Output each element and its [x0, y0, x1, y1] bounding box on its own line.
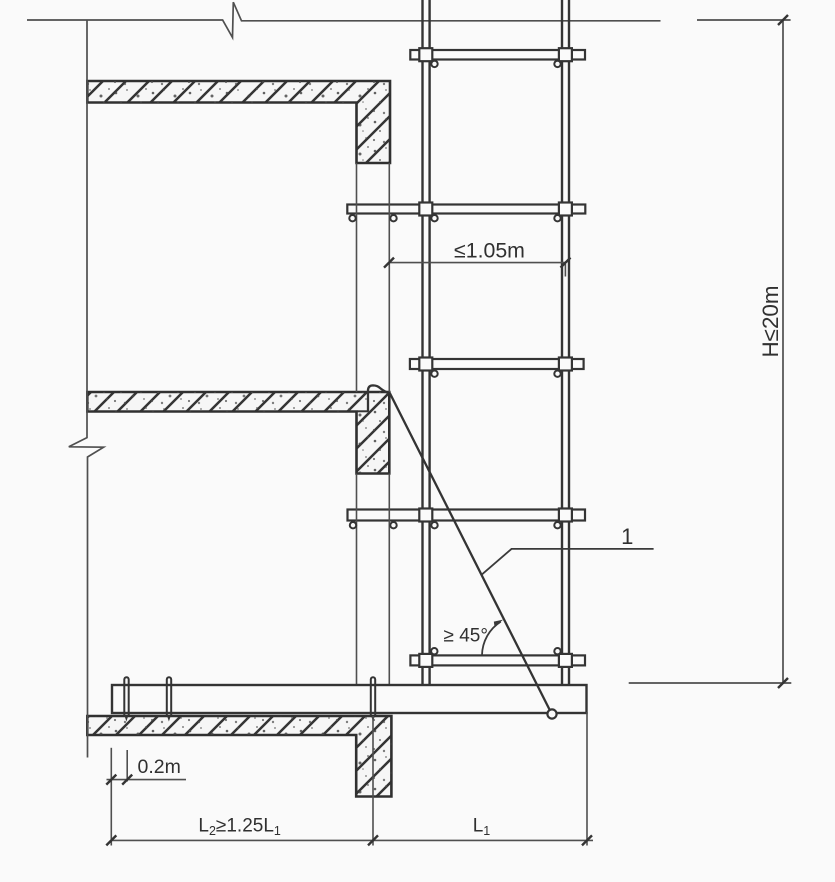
svg-text:L2≥1.25L1: L2≥1.25L1 — [198, 816, 281, 839]
svg-text:≤1.05m: ≤1.05m — [454, 238, 525, 262]
svg-text:H≤20m: H≤20m — [758, 285, 783, 357]
svg-text:≥ 45°: ≥ 45° — [444, 626, 488, 647]
svg-text:1: 1 — [621, 524, 633, 549]
svg-text:0.2m: 0.2m — [138, 756, 181, 778]
svg-text:L1: L1 — [473, 816, 491, 839]
